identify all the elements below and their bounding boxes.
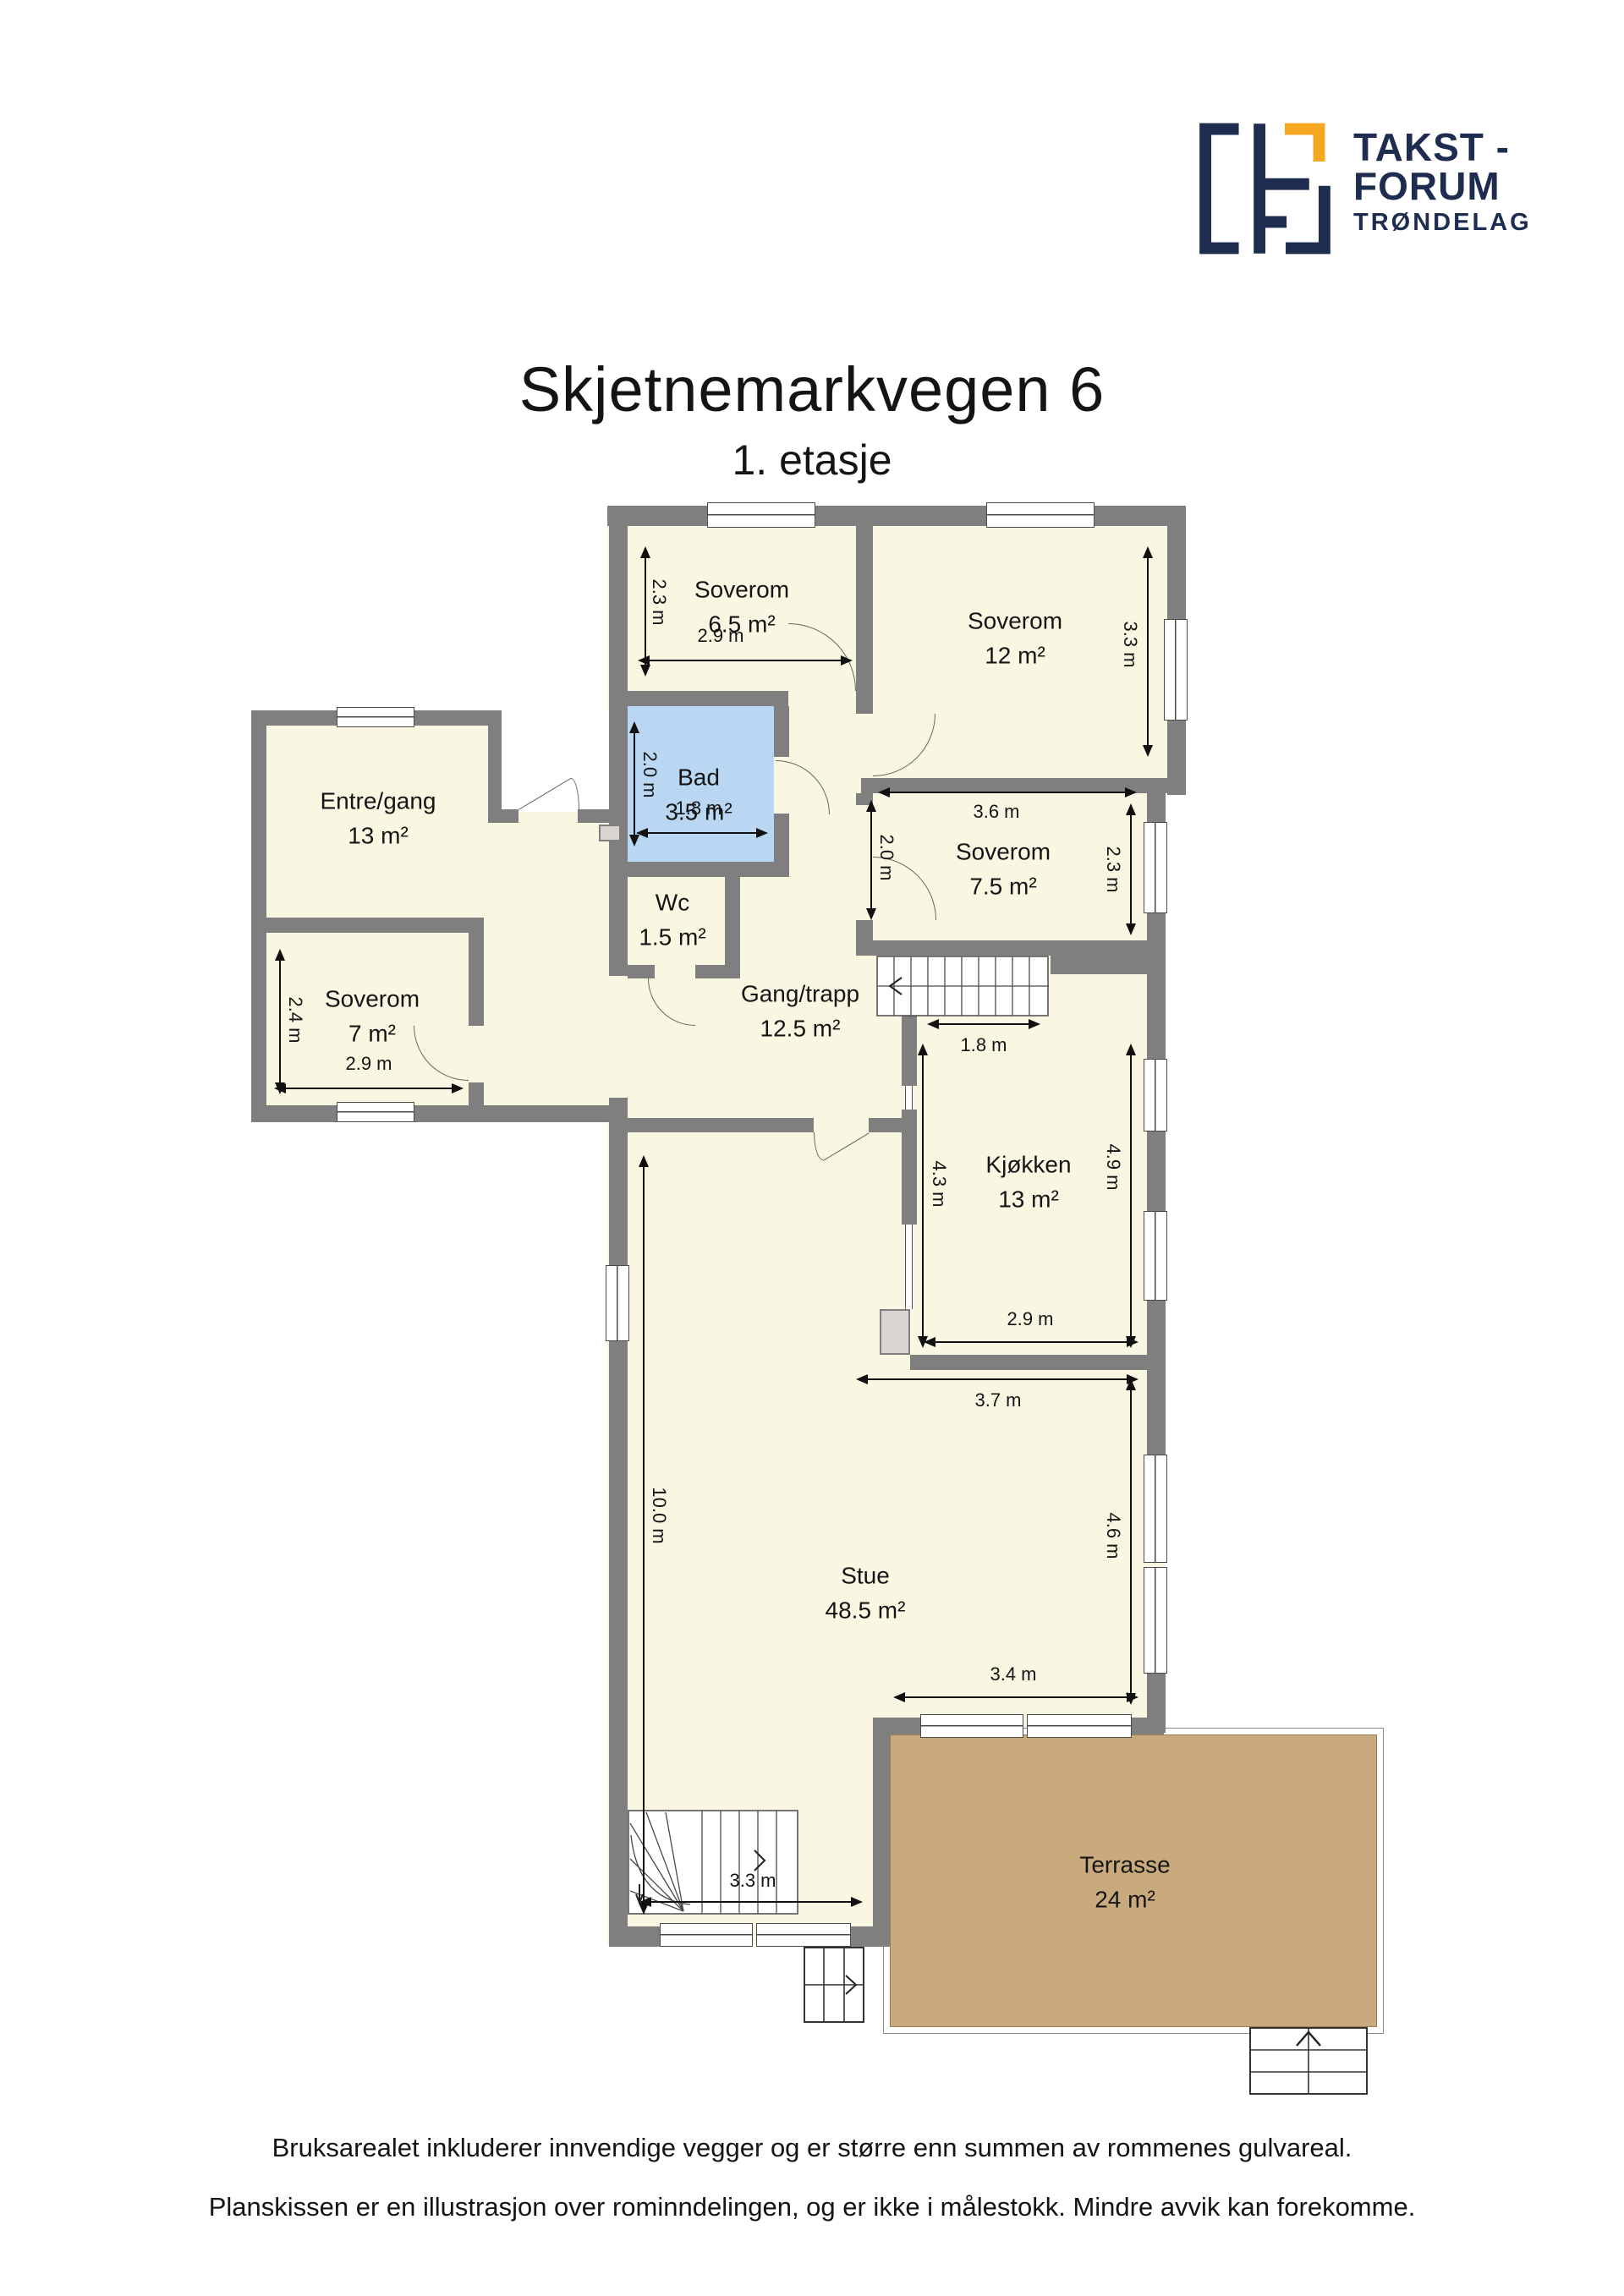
chimney bbox=[880, 1309, 910, 1355]
dimension-label: 2.9 m bbox=[1007, 1308, 1053, 1330]
window bbox=[1144, 1059, 1167, 1132]
dimension-line bbox=[641, 1901, 861, 1903]
wall bbox=[1132, 1718, 1164, 1734]
wall bbox=[251, 1105, 337, 1122]
room-area: 24 m² bbox=[1079, 1882, 1170, 1917]
room-name: Soverom bbox=[968, 604, 1062, 638]
wall bbox=[869, 1118, 916, 1132]
entry-porch bbox=[502, 710, 612, 812]
dimension-label: 4.3 m bbox=[928, 1160, 950, 1207]
room-area: 12.5 m² bbox=[741, 1011, 859, 1046]
dimension-line bbox=[858, 1378, 1137, 1380]
wall bbox=[725, 877, 740, 965]
wall bbox=[774, 814, 789, 862]
room-area: 48.5 m² bbox=[826, 1593, 906, 1628]
room-label-wc: Wc 1.5 m² bbox=[639, 885, 705, 954]
room-area: 3.5 m² bbox=[665, 795, 732, 830]
dimension-line bbox=[1130, 1380, 1132, 1703]
dimension-label: 2.9 m bbox=[345, 1053, 392, 1075]
dimension-line bbox=[639, 660, 851, 661]
room-name: Soverom bbox=[694, 573, 789, 607]
dimension-label: 1.8 m bbox=[960, 1034, 1007, 1056]
dimension-label: 2.0 m bbox=[639, 751, 661, 797]
room-name: Terrasse bbox=[1079, 1848, 1170, 1882]
dimension-line bbox=[276, 1088, 462, 1089]
staircase-upper bbox=[876, 956, 1049, 1021]
window bbox=[707, 502, 815, 528]
dimension-label: 4.6 m bbox=[1102, 1512, 1124, 1559]
dimension-label: 3.3 m bbox=[1119, 621, 1141, 667]
window bbox=[1027, 1714, 1132, 1738]
room-name: Soverom bbox=[325, 982, 420, 1016]
wall bbox=[628, 965, 655, 978]
room-label-kjokken: Kjøkken 13 m² bbox=[985, 1148, 1071, 1216]
dimension-label: 3.6 m bbox=[973, 801, 1019, 823]
room-area: 1.5 m² bbox=[639, 920, 705, 955]
wall bbox=[890, 1718, 920, 1734]
dimension-line bbox=[895, 1696, 1137, 1698]
glass-partition bbox=[905, 1225, 913, 1309]
room-name: Gang/trapp bbox=[741, 977, 859, 1011]
company-logo: TAKST - FORUM TRØNDELAG bbox=[1195, 121, 1533, 265]
wall bbox=[1147, 793, 1166, 822]
dimension-line bbox=[870, 802, 872, 918]
window bbox=[606, 1265, 629, 1341]
window bbox=[1144, 822, 1167, 913]
wall bbox=[856, 940, 1147, 956]
wall bbox=[578, 809, 611, 823]
dimension-line bbox=[925, 1341, 1137, 1343]
footer-disclaimer-1: Bruksarealet inkluderer innvendige vegge… bbox=[0, 2133, 1624, 2163]
wall bbox=[1167, 506, 1186, 619]
room-label-stue: Stue 48.5 m² bbox=[826, 1559, 906, 1627]
dimension-label: 2.0 m bbox=[875, 834, 897, 880]
window bbox=[1144, 1567, 1167, 1674]
room-name: Kjøkken bbox=[985, 1148, 1071, 1182]
dimension-label: 2.4 m bbox=[284, 996, 306, 1043]
window bbox=[756, 1923, 851, 1947]
logo-line1: TAKST - bbox=[1353, 128, 1532, 167]
window bbox=[1144, 1455, 1167, 1563]
window bbox=[920, 1714, 1023, 1738]
wall bbox=[609, 506, 628, 976]
room-label-soverom65: Soverom 6.5 m² bbox=[694, 573, 789, 641]
wall bbox=[469, 1082, 484, 1105]
dimension-line bbox=[279, 951, 281, 1093]
terrace-steps bbox=[1249, 2027, 1368, 2099]
footer-disclaimer-2: Planskissen er en illustrasjon over romi… bbox=[0, 2192, 1624, 2222]
room-label-terrasse: Terrasse 24 m² bbox=[1079, 1848, 1170, 1916]
wall bbox=[488, 726, 502, 809]
dimension-label: 2.3 m bbox=[1102, 846, 1124, 892]
wall bbox=[856, 526, 873, 714]
glass-partition bbox=[905, 1086, 913, 1110]
wall bbox=[873, 1718, 890, 1945]
wall bbox=[695, 965, 740, 978]
wall bbox=[611, 1926, 660, 1947]
wall bbox=[628, 862, 789, 877]
room-name: Entre/gang bbox=[321, 784, 436, 819]
wall bbox=[251, 918, 484, 933]
room-label-bad: Bad 3.5 m² bbox=[665, 760, 732, 829]
wall bbox=[1147, 1132, 1166, 1211]
window bbox=[337, 707, 414, 727]
dimension-label: 3.4 m bbox=[990, 1663, 1036, 1685]
wall bbox=[609, 1098, 628, 1947]
window bbox=[1164, 619, 1188, 721]
room-area: 13 m² bbox=[321, 819, 436, 853]
dimension-label: 3.3 m bbox=[729, 1870, 776, 1892]
dimension-line bbox=[922, 1045, 924, 1346]
window bbox=[1144, 1211, 1167, 1301]
page-subtitle: 1. etasje bbox=[0, 436, 1624, 485]
dimension-line bbox=[1130, 805, 1132, 934]
room-area: 13 m² bbox=[985, 1182, 1071, 1217]
wall bbox=[1147, 1301, 1166, 1455]
logo-line3: TRØNDELAG bbox=[1353, 211, 1532, 235]
wall bbox=[469, 933, 484, 1026]
dimension-line bbox=[1147, 548, 1149, 755]
wall bbox=[628, 691, 788, 706]
wall bbox=[910, 1355, 1147, 1370]
window bbox=[660, 1923, 753, 1947]
dimension-line bbox=[643, 1157, 645, 1913]
dimension-line bbox=[929, 1023, 1039, 1025]
window bbox=[986, 502, 1095, 528]
dimension-label: 10.0 m bbox=[648, 1487, 670, 1543]
wall bbox=[851, 1926, 890, 1947]
floorplan-page: TAKST - FORUM TRØNDELAG Skjetnemarkvegen… bbox=[0, 0, 1624, 2296]
room-label-soverom7: Soverom 7 m² bbox=[325, 982, 420, 1050]
wall bbox=[414, 710, 502, 726]
wall bbox=[488, 809, 518, 823]
dimension-line bbox=[1130, 1045, 1132, 1346]
page-title: Skjetnemarkvegen 6 bbox=[0, 353, 1624, 425]
dimension-label: 3.7 m bbox=[974, 1389, 1021, 1411]
door-steps bbox=[804, 1947, 864, 2027]
room-name: Stue bbox=[826, 1559, 906, 1593]
wall bbox=[1051, 956, 1164, 974]
room-label-soverom75: Soverom 7.5 m² bbox=[956, 835, 1051, 903]
dimension-line bbox=[880, 792, 1135, 793]
logo-mark-icon bbox=[1195, 121, 1335, 256]
room-label-gang: Gang/trapp 12.5 m² bbox=[741, 977, 859, 1045]
wall bbox=[611, 1118, 814, 1132]
wall bbox=[902, 1011, 917, 1086]
room-name: Bad bbox=[665, 760, 732, 795]
wall bbox=[414, 1105, 628, 1122]
room-area: 12 m² bbox=[968, 638, 1062, 673]
room-name: Soverom bbox=[956, 835, 1051, 869]
wall bbox=[607, 506, 1186, 526]
room-area: 7 m² bbox=[325, 1016, 420, 1051]
wall bbox=[251, 710, 266, 1122]
dimension-label: 4.9 m bbox=[1102, 1143, 1124, 1190]
wall bbox=[774, 706, 789, 757]
room-area: 7.5 m² bbox=[956, 869, 1051, 904]
dimension-line bbox=[638, 832, 766, 834]
dimension-line bbox=[634, 723, 635, 845]
logo-line2: FORUM bbox=[1353, 167, 1532, 205]
room-area: 6.5 m² bbox=[694, 607, 789, 642]
room-label-soverom12: Soverom 12 m² bbox=[968, 604, 1062, 672]
room-name: Wc bbox=[639, 885, 705, 920]
logo-text: TAKST - FORUM TRØNDELAG bbox=[1353, 128, 1532, 235]
dimension-label: 2.3 m bbox=[648, 578, 670, 625]
room-label-entre: Entre/gang 13 m² bbox=[321, 784, 436, 852]
chimney bbox=[599, 825, 621, 841]
wall bbox=[1147, 913, 1166, 1059]
window bbox=[337, 1102, 414, 1122]
